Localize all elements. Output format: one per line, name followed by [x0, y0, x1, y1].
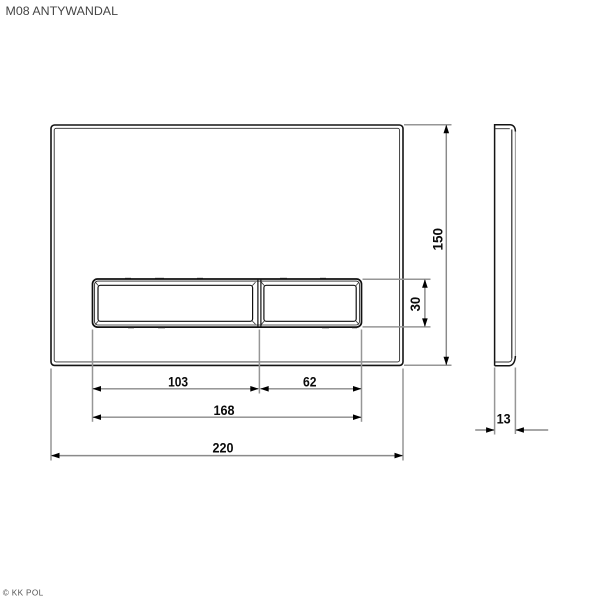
svg-text:30: 30	[408, 297, 423, 312]
svg-text:103: 103	[168, 374, 188, 389]
svg-text:M08 ANTYWANDAL: M08 ANTYWANDAL	[6, 4, 119, 18]
svg-text:150: 150	[431, 228, 446, 251]
svg-text:220: 220	[213, 441, 234, 456]
svg-text:62: 62	[303, 374, 317, 389]
svg-text:13: 13	[497, 411, 511, 426]
svg-text:168: 168	[214, 403, 235, 418]
svg-text:© KK POL: © KK POL	[3, 589, 44, 598]
